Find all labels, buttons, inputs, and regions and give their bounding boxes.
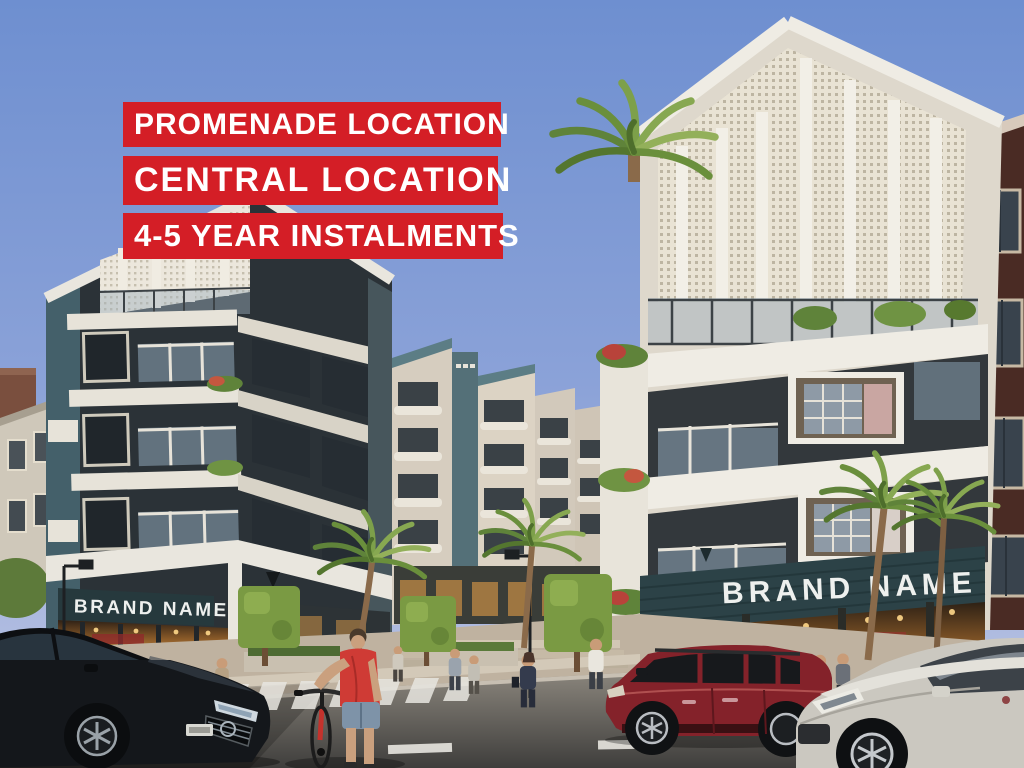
- promo-render: BRAND NAME: [0, 0, 1024, 768]
- promo-banner-promenade-location: PROMENADE LOCATION: [123, 102, 501, 147]
- promo-banner-stack: PROMENADE LOCATION CENTRAL LOCATION 4-5 …: [123, 102, 503, 259]
- brand-name-sign-left: BRAND NAME: [74, 596, 229, 621]
- promo-banner-central-location: CENTRAL LOCATION: [123, 156, 498, 205]
- promo-banner-instalments: 4-5 YEAR INSTALMENTS: [123, 213, 503, 259]
